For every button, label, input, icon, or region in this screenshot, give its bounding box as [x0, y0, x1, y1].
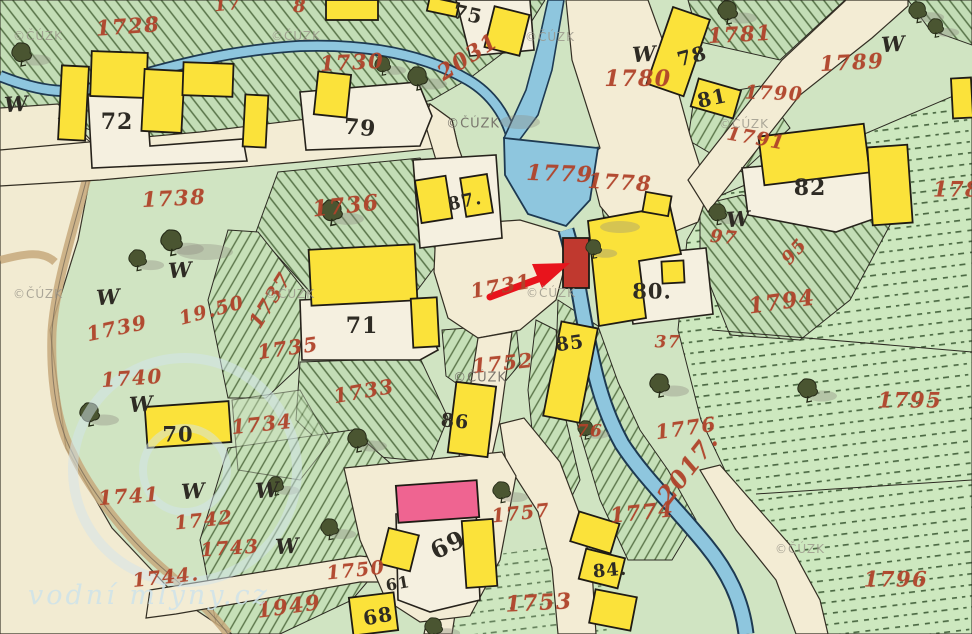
cuzk-watermark: ©ČÚZK — [13, 30, 63, 42]
parcel-number-label: 1742 — [174, 508, 235, 533]
cuzk-watermark: ©ČÚZK — [453, 372, 507, 385]
house-number-label: 70 — [162, 424, 193, 445]
parcel-number-label: 1731 — [469, 271, 533, 301]
parcel-number-label: 1735 — [256, 334, 320, 362]
house-number-label: 82 — [794, 177, 827, 199]
house-number-label: 84. — [592, 561, 628, 582]
meadow-symbol: W — [725, 208, 750, 231]
parcel-number-label: 1739 — [85, 312, 149, 344]
parcel-number-label: 37 — [655, 335, 682, 352]
cadastral-map: 1728178173020311779177817801781178917901… — [0, 0, 972, 634]
house-number-label: 61 — [385, 574, 412, 594]
parcel-number-label: 1736 — [311, 192, 380, 221]
house-number-label: 86 — [440, 411, 470, 432]
parcel-number-label: 1794 — [747, 286, 817, 317]
parcel-number-label: 1780 — [604, 68, 671, 90]
parcel-number-label: 95 — [779, 236, 811, 269]
parcel-number-label: 1789 — [819, 50, 884, 74]
parcel-number-label: 1753 — [505, 590, 573, 615]
house-number-label: 80. — [632, 281, 672, 302]
parcel-number-label: 1752 — [471, 350, 534, 376]
parcel-number-label: 1740 — [101, 366, 164, 390]
parcel-number-label: 97 — [709, 228, 739, 248]
meadow-symbol: W — [95, 286, 120, 309]
parcel-number-label: 1776 — [654, 414, 718, 442]
meadow-symbol: W — [254, 479, 279, 502]
parcel-number-label: 1778 — [587, 170, 652, 194]
house-number-label: 79 — [343, 116, 377, 141]
cuzk-watermark: ©ČÚZK — [525, 31, 575, 43]
parcel-number-label: 8 — [293, 0, 307, 16]
meadow-symbol: W — [167, 259, 192, 282]
parcel-number-label: 1774 — [609, 498, 675, 526]
meadow-symbol: W — [128, 393, 153, 416]
parcel-number-label: 1781 — [707, 22, 772, 46]
label-layer: 1728178173020311779177817801781178917901… — [0, 0, 972, 634]
meadow-symbol: W — [3, 93, 28, 116]
cuzk-watermark: ©ČÚZK — [526, 287, 576, 299]
house-number-label: 68 — [362, 604, 395, 629]
parcel-number-label: 1796 — [864, 569, 928, 590]
parcel-number-label: 2017. — [653, 428, 723, 508]
parcel-number-label: 1737 — [245, 269, 295, 332]
house-number-label: 75 — [451, 1, 484, 27]
house-number-label: 71 — [346, 315, 379, 337]
parcel-number-label: 1949 — [256, 591, 323, 621]
parcel-number-label: 1790 — [744, 83, 804, 104]
house-number-label: 85 — [555, 333, 586, 356]
parcel-number-label: 1757 — [491, 501, 552, 526]
cuzk-watermark: ©ČÚZK — [271, 30, 321, 42]
house-number-label: 72 — [101, 111, 134, 133]
parcel-number-label: 1795 — [878, 390, 942, 411]
house-number-label: 69 — [427, 527, 469, 564]
house-number-label: 87. — [446, 190, 483, 215]
parcel-number-label: 76 — [577, 424, 604, 441]
cuzk-watermark: ©ČÚZK — [775, 543, 825, 555]
meadow-symbol: W — [180, 480, 205, 503]
cuzk-watermark: ©ČÚZK — [265, 288, 315, 300]
parcel-number-label: 1733 — [332, 376, 396, 406]
parcel-number-label: 1750 — [326, 558, 387, 583]
cuzk-watermark: ©ČÚZK — [446, 118, 500, 131]
house-number-label: 81 — [695, 85, 728, 111]
parcel-number-label: 17 — [213, 0, 243, 15]
parcel-number-label: 19.50 — [177, 293, 247, 329]
house-number-label: 78 — [675, 42, 709, 69]
parcel-number-label: 1738 — [141, 186, 206, 210]
parcel-number-label: 1730 — [319, 50, 384, 74]
parcel-number-label: 178 — [933, 179, 972, 200]
meadow-symbol: W — [631, 43, 656, 66]
cuzk-watermark: ©ČÚZK — [719, 118, 769, 130]
cuzk-watermark: ©ČÚZK — [13, 288, 63, 300]
parcel-number-label: 1741 — [98, 484, 161, 508]
parcel-number-label: 1734 — [230, 411, 293, 437]
parcel-number-label: 1791 — [725, 125, 786, 154]
parcel-number-label: 1728 — [95, 13, 161, 38]
parcel-number-label: 1743 — [200, 537, 260, 560]
parcel-number-label: 1744. — [132, 565, 201, 591]
parcel-number-label: 2031 — [434, 29, 502, 84]
meadow-symbol: W — [274, 535, 299, 558]
parcel-number-label: 1779 — [526, 162, 594, 186]
meadow-symbol: W — [880, 33, 905, 56]
